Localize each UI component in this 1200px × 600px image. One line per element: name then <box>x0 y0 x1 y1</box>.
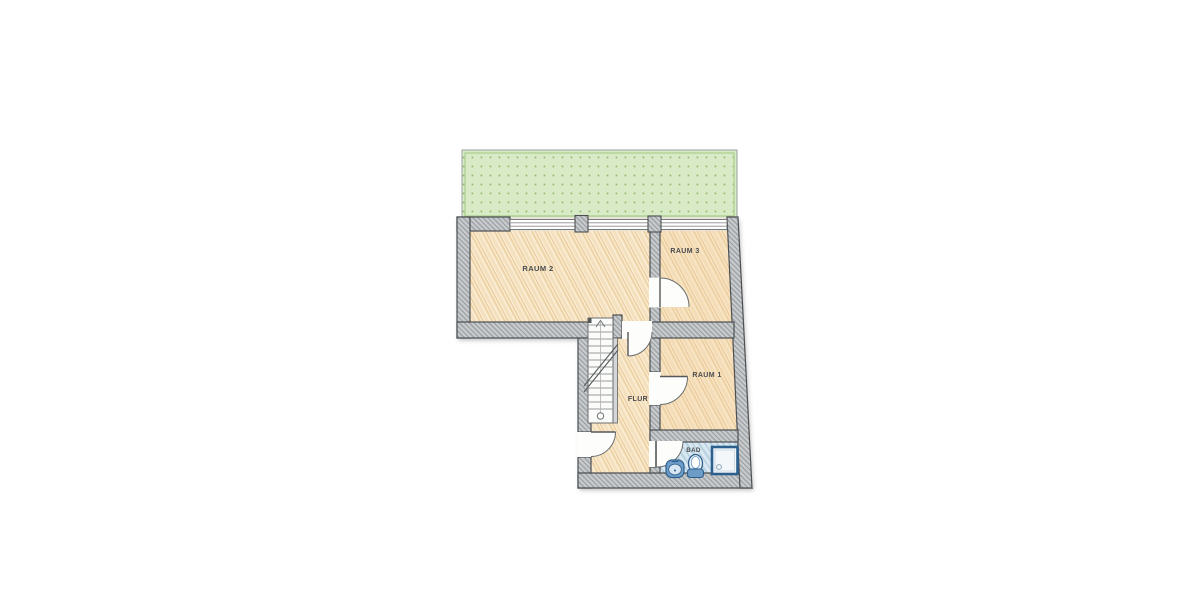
floorplan-page: RAUM 2 RAUM 3 RAUM 1 FLUR BAD <box>0 0 1200 600</box>
sink-icon <box>666 460 684 478</box>
facade-junction-pier <box>648 216 661 232</box>
wall-center-seg4 <box>650 467 660 473</box>
room-label-raum2: RAUM 2 <box>522 264 553 273</box>
wall-bad-top <box>650 430 738 442</box>
door-opening-entrance <box>577 432 591 457</box>
window-mullion <box>575 216 588 233</box>
window-band-3 <box>661 220 727 230</box>
window-band-1 <box>510 220 575 230</box>
room-label-raum3: RAUM 3 <box>670 248 699 255</box>
wall-center-seg2 <box>650 307 660 372</box>
door-opening-raum1 <box>649 372 661 405</box>
room-raum2-floor <box>470 231 650 322</box>
door-opening-raum3 <box>649 278 661 308</box>
staircase <box>584 318 618 423</box>
terrace-area <box>462 150 737 219</box>
floorplan-canvas: RAUM 2 RAUM 3 RAUM 1 FLUR BAD <box>0 0 1200 600</box>
toilet-icon <box>688 455 704 478</box>
shower-icon <box>712 447 738 474</box>
stair-jamb-stub <box>588 318 592 323</box>
room-label-bad: BAD <box>686 447 701 454</box>
room-label-raum1: RAUM 1 <box>692 372 721 379</box>
wall-center-seg1 <box>650 231 660 278</box>
wall-stair-stub <box>613 315 622 338</box>
wall-raum3-raum1 <box>650 322 734 338</box>
room-label-flur: FLUR <box>628 396 648 403</box>
window-band-2 <box>588 220 648 230</box>
terrace-dot-pattern <box>462 150 737 219</box>
room-raum3-tint <box>660 231 732 322</box>
stair-start-marker <box>597 413 603 419</box>
wall-left-outer <box>457 217 470 338</box>
wall-raum2-bottom <box>457 322 591 338</box>
